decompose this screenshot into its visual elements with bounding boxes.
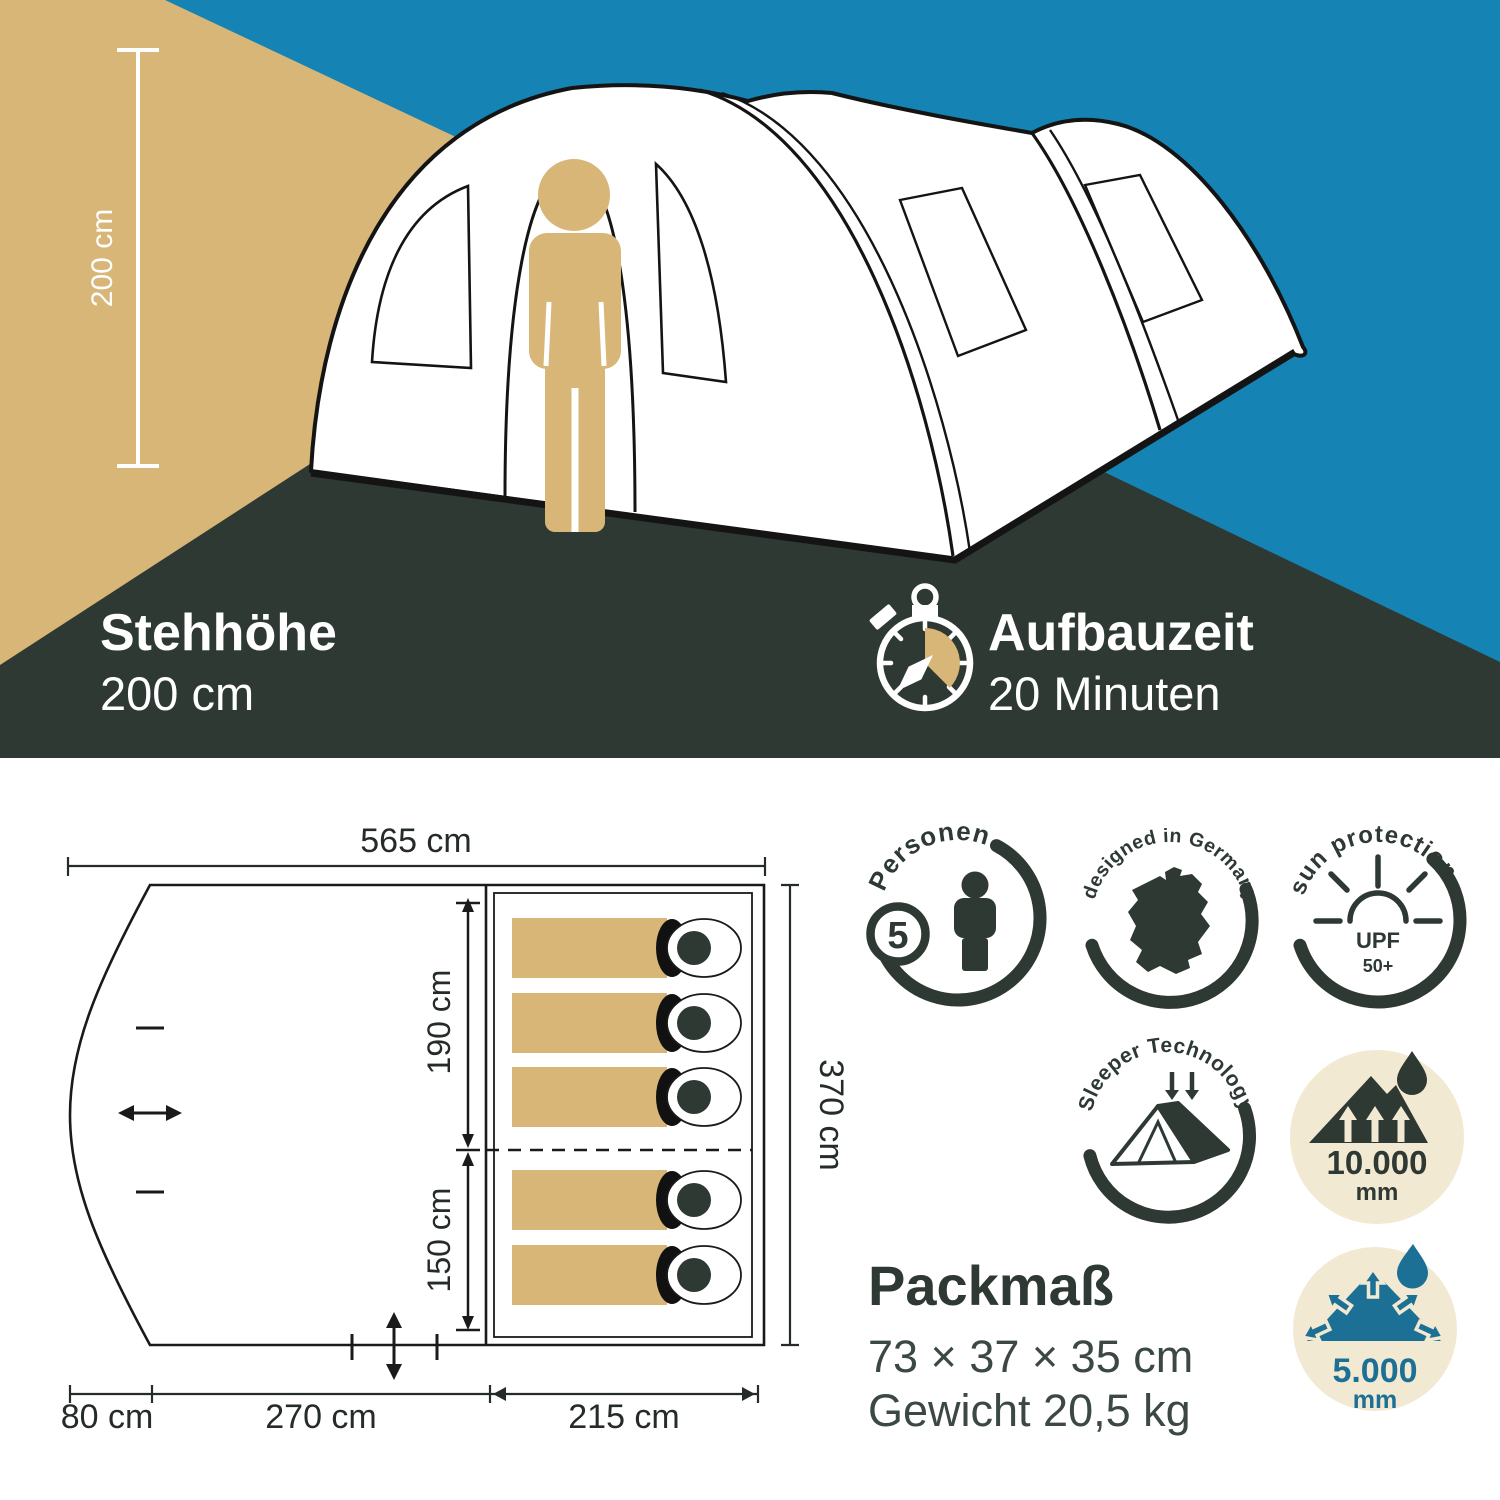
- badge-water-column-floor: 5.000 mm: [1293, 1244, 1457, 1414]
- pack-size: 73 × 37 × 35 cm: [868, 1331, 1193, 1382]
- sleeping-bag: [512, 1245, 741, 1305]
- sleeping-bag: [512, 993, 741, 1053]
- badge-persons: Personen 5: [862, 816, 1040, 1000]
- badge-sleeper: Sleeper Technology: [1074, 1034, 1258, 1217]
- pack-title: Packmaß: [868, 1254, 1114, 1317]
- stopwatch-crown: [912, 605, 938, 619]
- badge-sun-protection: sun protection UPF 50+: [1284, 821, 1464, 1002]
- water-floor-value: 5.000: [1332, 1352, 1417, 1390]
- persons-count: 5: [887, 915, 908, 957]
- dim-270-label: 270 cm: [265, 1398, 377, 1436]
- badge-water-column-outer: 10.000 mm: [1290, 1050, 1464, 1224]
- aufbauzeit-title: Aufbauzeit: [988, 604, 1254, 662]
- water-outer-unit: mm: [1356, 1179, 1399, 1206]
- top-banner: 200 cm Stehhöhe 200 cm Aufbauzeit 20 Min…: [0, 0, 1500, 758]
- sun-upf-label: UPF: [1356, 928, 1400, 953]
- person-torso: [529, 233, 621, 369]
- person-icon-legs: [962, 938, 988, 971]
- breathability-arrows: [1339, 1106, 1410, 1142]
- sun-dome: [1350, 893, 1406, 921]
- aufbauzeit-value: 20 Minuten: [988, 667, 1221, 720]
- sleeping-bag: [512, 918, 741, 978]
- dim-370-label: 370 cm: [812, 1059, 850, 1171]
- svg-text:sun protection: sun protection: [1284, 821, 1464, 899]
- person-arm-gap-right: [601, 302, 604, 366]
- dim-190-label: 190 cm: [421, 970, 457, 1075]
- sleeper-tent-icon: [1112, 1072, 1228, 1164]
- person-icon-head: [962, 872, 989, 899]
- person-count-icon: [954, 872, 996, 972]
- stehhoehe-value: 200 cm: [100, 667, 254, 720]
- floor-plan: 565 cm: [61, 822, 850, 1436]
- water-floor-unit: mm: [1353, 1386, 1397, 1414]
- sleeping-bags: [512, 918, 741, 1305]
- dim-150-label: 150 cm: [421, 1188, 457, 1293]
- dim-370: [781, 885, 799, 1345]
- infographic-canvas: 200 cm Stehhöhe 200 cm Aufbauzeit 20 Min…: [0, 0, 1500, 1500]
- sun-upf-value: 50+: [1363, 956, 1394, 976]
- floor-water-drop-icon: [1397, 1244, 1428, 1289]
- sun-icon: [1316, 857, 1440, 921]
- dim-215-label: 215 cm: [568, 1398, 680, 1436]
- sleeping-bag: [512, 1170, 741, 1230]
- badge-sleeper-arc-label: Sleeper Technology: [1074, 1034, 1258, 1114]
- sleeping-bag: [512, 1067, 741, 1127]
- tent-infographic: 200 cm Stehhöhe 200 cm Aufbauzeit 20 Min…: [0, 0, 1500, 1500]
- dim-565-label: 565 cm: [360, 822, 472, 860]
- svg-text:Sleeper Technology: Sleeper Technology: [1074, 1034, 1258, 1114]
- pack-weight: Gewicht 20,5 kg: [868, 1385, 1191, 1436]
- pack-size-block: Packmaß 73 × 37 × 35 cm Gewicht 20,5 kg: [868, 1254, 1193, 1436]
- water-outer-value: 10.000: [1327, 1144, 1428, 1181]
- badge-sun-arc-label: sun protection: [1284, 821, 1464, 899]
- germany-map-icon: [1128, 867, 1210, 974]
- person-arm-gap-left: [546, 302, 549, 366]
- height-dim-label: 200 cm: [86, 209, 119, 307]
- dim-80-label: 80 cm: [61, 1398, 154, 1436]
- person-icon-torso: [954, 898, 996, 938]
- sleeper-down-arrows: [1172, 1072, 1192, 1092]
- badge-germany: designed in Germany: [1078, 825, 1262, 1003]
- stehhoehe-title: Stehhöhe: [100, 604, 337, 662]
- person-head: [538, 159, 610, 231]
